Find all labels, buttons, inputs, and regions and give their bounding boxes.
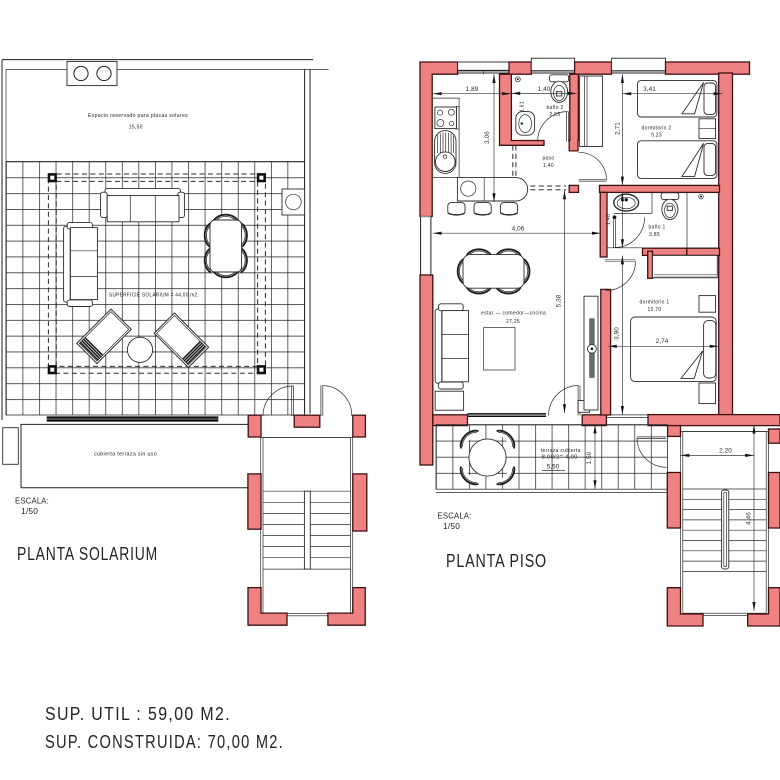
svg-text:3,85: 3,85 <box>649 232 660 238</box>
svg-text:2,71: 2,71 <box>615 122 622 135</box>
svg-text:baño 1: baño 1 <box>648 224 665 230</box>
svg-text:4.46: 4.46 <box>745 512 752 525</box>
svg-text:1,61: 1,61 <box>520 101 526 112</box>
svg-text:1/50: 1/50 <box>21 506 38 516</box>
svg-text:27,25: 27,25 <box>506 319 520 325</box>
svg-text:3,06: 3,06 <box>484 131 491 144</box>
svg-text:15,50: 15,50 <box>129 125 143 131</box>
svg-text:SUPERFICIE SOLARIUM = 44,00: SUPERFICIE SOLARIUM = 44,00 m2. <box>109 292 199 298</box>
svg-text:5,38: 5,38 <box>556 294 563 307</box>
svg-text:2.20: 2.20 <box>719 447 732 454</box>
svg-text:Espacio reservado para plac: Espacio reservado para placas solares <box>88 113 188 119</box>
svg-text:1,50: 1,50 <box>586 451 593 464</box>
svg-text:9,23: 9,23 <box>651 132 662 138</box>
svg-text:2,74: 2,74 <box>656 338 669 345</box>
svg-text:terraza cubierta: terraza cubierta <box>541 448 581 454</box>
svg-text:1,89: 1,89 <box>466 86 479 93</box>
svg-text:cubierta terraza sin uso: cubierta terraza sin uso <box>94 451 157 457</box>
svg-text:1/50: 1/50 <box>443 521 460 531</box>
svg-text:3,90: 3,90 <box>614 327 621 340</box>
svg-text:10,70: 10,70 <box>647 307 661 313</box>
svg-text:SUP. CONSTRUIDA: 70,00 M2.: SUP. CONSTRUIDA: 70,00 M2. <box>45 731 284 752</box>
svg-text:dormitorio 2: dormitorio 2 <box>642 125 672 131</box>
svg-text:1,40: 1,40 <box>543 163 554 169</box>
svg-text:ESCALA:: ESCALA: <box>15 496 49 506</box>
svg-text:paso: paso <box>542 156 554 162</box>
svg-text:1,40: 1,40 <box>538 86 551 93</box>
svg-text:baño 2: baño 2 <box>546 105 563 111</box>
svg-text:1,40: 1,40 <box>606 214 612 225</box>
svg-text:PLANTA SOLARIUM: PLANTA SOLARIUM <box>17 543 158 564</box>
svg-text:3,41: 3,41 <box>643 86 656 93</box>
svg-text:estar — comedor—cocina: estar — comedor—cocina <box>481 311 546 317</box>
svg-text:5,50: 5,50 <box>547 463 560 470</box>
svg-text:SUP. UTIL : 59,00 M2.: SUP. UTIL : 59,00 M2. <box>45 703 231 724</box>
svg-text:8,00/2= 4,00: 8,00/2= 4,00 <box>542 455 578 461</box>
svg-text:dormitorio 1: dormitorio 1 <box>640 300 670 306</box>
svg-text:PLANTA PISO: PLANTA PISO <box>446 550 547 571</box>
svg-text:4,06: 4,06 <box>512 225 525 232</box>
svg-text:ESCALA:: ESCALA: <box>438 511 472 521</box>
